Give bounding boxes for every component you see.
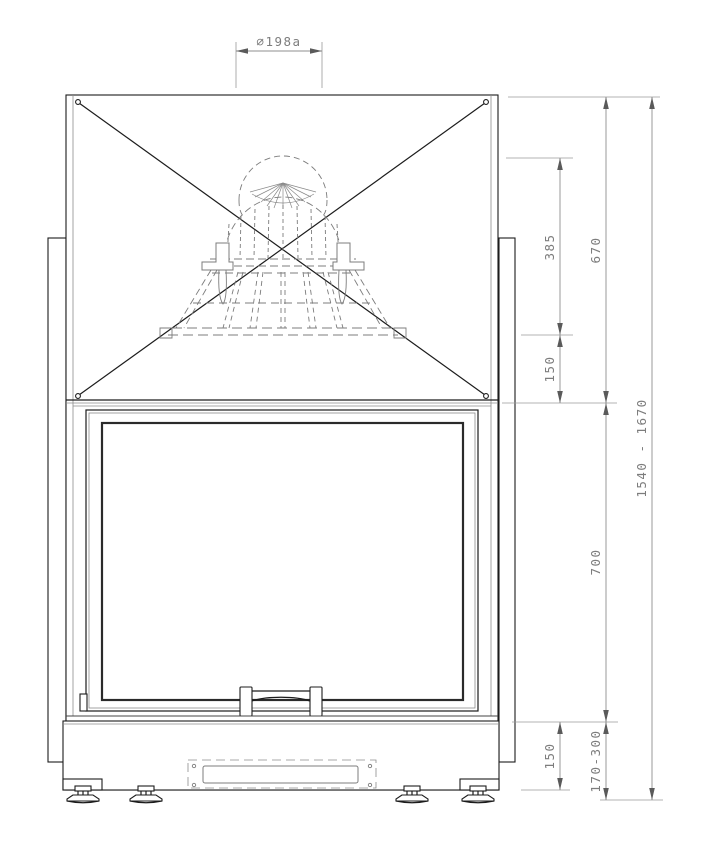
left-side-panel — [48, 238, 66, 762]
handle-post-right — [310, 687, 322, 716]
screw-icon — [484, 100, 489, 105]
technical-drawing: ∅198a 385 150 670 700 — [0, 0, 709, 863]
body-outline — [66, 95, 498, 790]
dome-height-label: 385 — [542, 233, 557, 260]
door-hinge — [80, 694, 87, 711]
handle-post-left — [240, 687, 252, 716]
screw-icon — [484, 394, 489, 399]
dim-door-section: 700 — [588, 403, 606, 722]
right-side-panel — [499, 238, 515, 762]
screw-icon — [76, 394, 81, 399]
base-plinth — [63, 716, 499, 790]
dim-flue-diameter: ∅198a — [236, 34, 322, 88]
vent-plate — [203, 766, 358, 783]
flue-diameter-label: ∅198a — [256, 34, 301, 49]
upper-section-label: 670 — [588, 236, 603, 263]
collar-clearance-label: 150 — [542, 355, 557, 382]
dim-collar-to-panel: 150 — [542, 335, 560, 403]
dim-upper-section: 670 — [588, 97, 606, 403]
door-section-label: 700 — [588, 548, 603, 575]
dim-total-height: 1540 - 1670 — [634, 97, 652, 800]
dim-base-height: 150 — [542, 722, 560, 790]
dim-dome-height: 385 — [542, 158, 560, 335]
front-body — [66, 95, 498, 790]
floor-clearance-label: 170-300 — [588, 729, 603, 792]
dim-floor-clearance: 170-300 — [588, 722, 606, 800]
drawing-canvas: ∅198a 385 150 670 700 — [0, 0, 709, 863]
base-height-label: 150 — [542, 742, 557, 769]
total-height-label: 1540 - 1670 — [634, 398, 649, 497]
screw-icon — [76, 100, 81, 105]
